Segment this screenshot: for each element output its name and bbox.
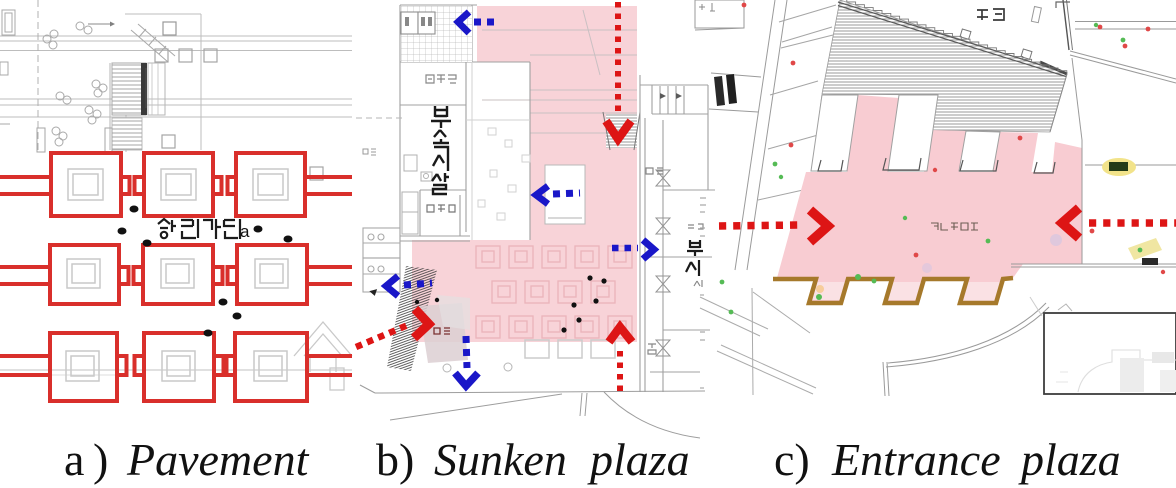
svg-text:a: a	[64, 434, 84, 485]
svg-text:Sunken: Sunken	[434, 434, 567, 485]
svg-text:plaza: plaza	[1018, 434, 1121, 485]
svg-text:c): c)	[774, 434, 810, 485]
svg-text:a: a	[240, 222, 250, 241]
svg-text:): )	[93, 434, 108, 485]
svg-text:Pavement: Pavement	[126, 434, 310, 485]
svg-text:b): b)	[376, 434, 414, 485]
svg-text:Entrance: Entrance	[831, 434, 1001, 485]
svg-text:plaza: plaza	[587, 434, 690, 485]
